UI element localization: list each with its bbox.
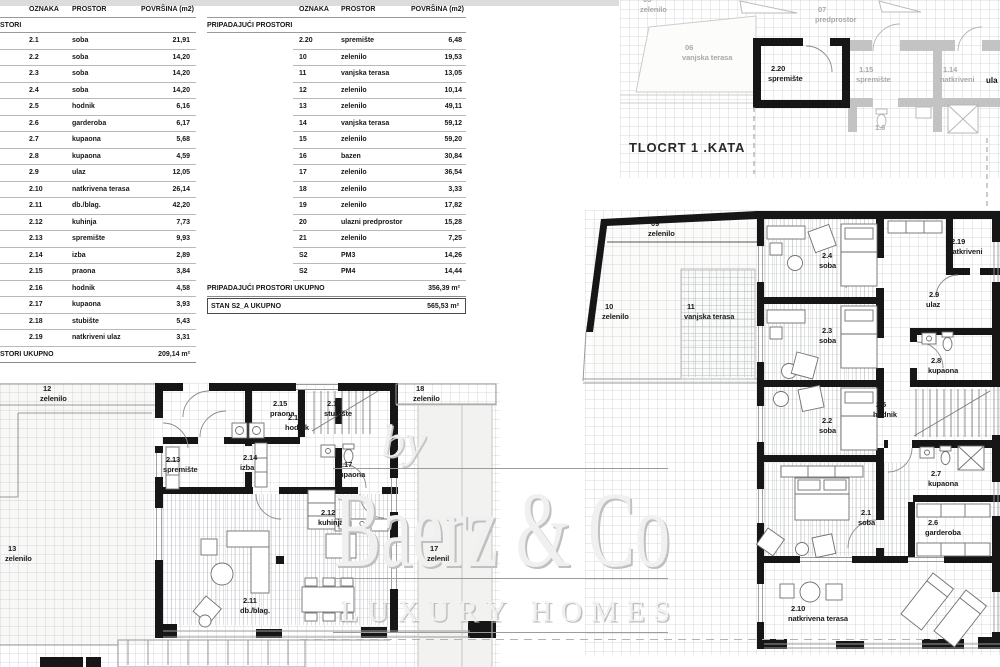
floorplan-sheet: OZNAKA PROSTOR POVRŠINA (m2) STORI 2.1 s… bbox=[0, 0, 1000, 667]
watermark-by: by bbox=[382, 416, 427, 468]
watermark-name: Baerz & Co bbox=[334, 471, 670, 590]
watermark: by by Baerz & Co Baerz & Co LUXURY HOMES… bbox=[0, 0, 1000, 667]
watermark-tagline-shadow: LUXURY HOMES bbox=[342, 597, 672, 630]
watermark-text: by by Baerz & Co Baerz & Co LUXURY HOMES… bbox=[334, 416, 672, 630]
